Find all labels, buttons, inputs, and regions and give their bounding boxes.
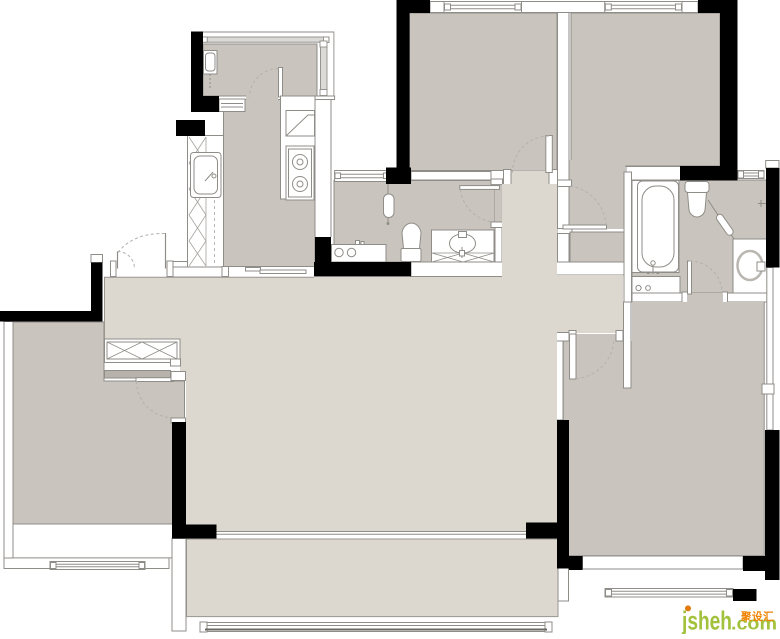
- svg-text:聚设汇: 聚设汇: [740, 610, 774, 623]
